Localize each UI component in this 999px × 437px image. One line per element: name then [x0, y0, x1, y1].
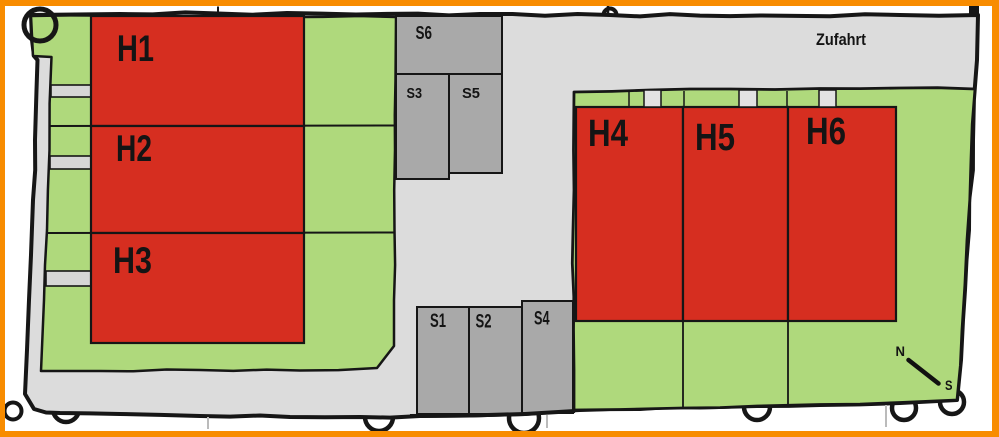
svg-text:N: N	[896, 343, 906, 359]
svg-text:H4: H4	[588, 113, 628, 155]
svg-text:S4: S4	[534, 309, 550, 330]
svg-text:S6: S6	[416, 23, 433, 43]
svg-text:S3: S3	[407, 85, 423, 102]
svg-text:H6: H6	[806, 111, 846, 153]
svg-text:Zufahrt: Zufahrt	[816, 30, 866, 49]
svg-text:H2: H2	[116, 128, 152, 169]
svg-text:S5: S5	[462, 85, 480, 102]
svg-text:S: S	[945, 377, 953, 393]
svg-text:H3: H3	[113, 240, 152, 281]
svg-text:H1: H1	[117, 28, 154, 69]
svg-text:H5: H5	[695, 117, 735, 159]
svg-text:S2: S2	[476, 312, 492, 333]
svg-text:S1: S1	[430, 311, 446, 332]
